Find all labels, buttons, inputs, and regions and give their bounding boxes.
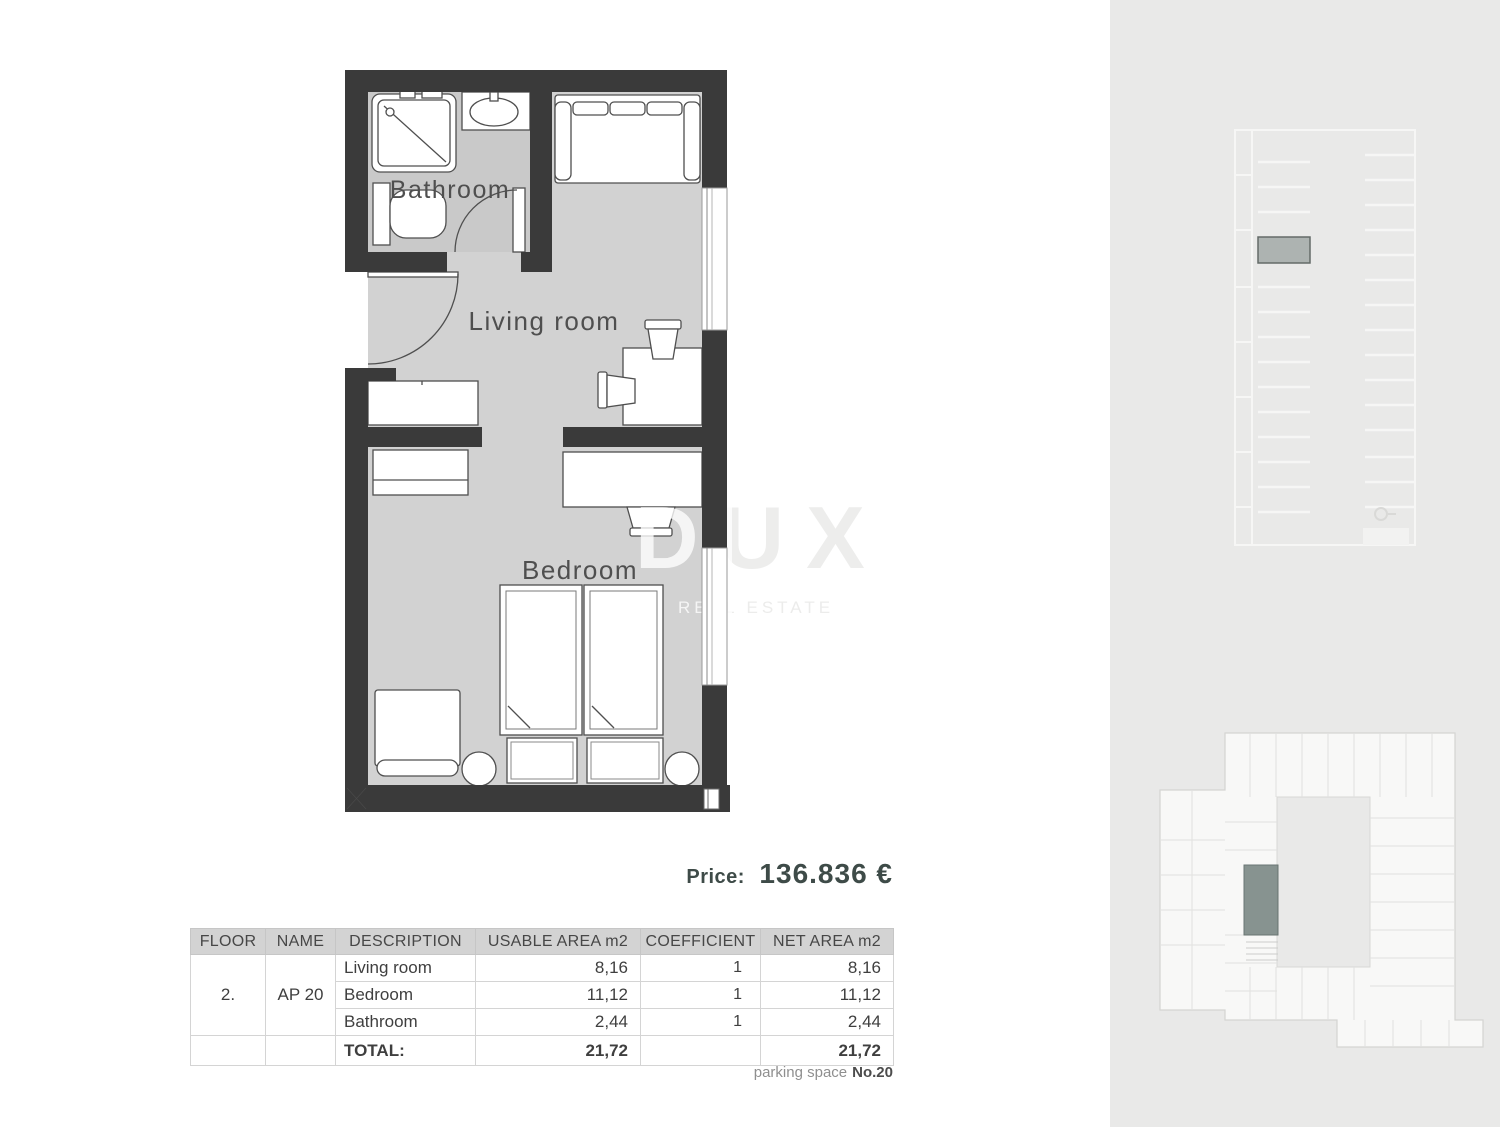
window-1: [702, 188, 727, 330]
highlighted-unit: [1244, 865, 1278, 935]
floor-plan: DUX REAL ESTATE Bathroom Living room: [342, 62, 732, 822]
bed-bench-2: [587, 738, 663, 783]
room-label-bathroom: Bathroom: [390, 176, 510, 204]
row-coefficient: 1: [641, 982, 761, 1009]
side-table-1: [462, 752, 496, 786]
sofa: [555, 95, 700, 183]
parking-ramp: [1363, 528, 1409, 545]
parking-note-label: parking space: [754, 1064, 847, 1081]
row-coefficient: 1: [641, 1009, 761, 1036]
total-floor-empty: [191, 1036, 266, 1066]
table-total-row: TOTAL: 21,72 21,72: [191, 1036, 894, 1066]
price-label: Price:: [686, 866, 745, 888]
header-floor: FLOOR: [191, 929, 266, 955]
total-name-empty: [266, 1036, 336, 1066]
row-coefficient: 1: [641, 955, 761, 982]
room-label-bedroom: Bedroom: [522, 555, 638, 585]
armchair: [375, 690, 460, 776]
row-usable: 2,44: [476, 1009, 641, 1036]
row-net: 2,44: [761, 1009, 894, 1036]
wardrobe: [373, 450, 468, 495]
header-coefficient: COEFFICIENT: [641, 929, 761, 955]
total-net: 21,72: [761, 1036, 894, 1066]
living-cabinet: [368, 381, 478, 425]
window-2: [702, 548, 727, 685]
bed-bench-1: [507, 738, 577, 783]
total-usable: 21,72: [476, 1036, 641, 1066]
area-table: FLOOR NAME DESCRIPTION USABLE AREA m2 CO…: [190, 928, 894, 1066]
site-panel: [1110, 0, 1500, 1127]
row-usable: 8,16: [476, 955, 641, 982]
total-coefficient-empty: [641, 1036, 761, 1066]
header-usable-area: USABLE AREA m2: [476, 929, 641, 955]
row-description: Living room: [336, 955, 476, 982]
price-value: 136.836 €: [759, 858, 893, 889]
header-net-area: NET AREA m2: [761, 929, 894, 955]
shower: [372, 90, 456, 172]
row-net: 8,16: [761, 955, 894, 982]
side-table-2: [665, 752, 699, 786]
table-header-row: FLOOR NAME DESCRIPTION USABLE AREA m2 CO…: [191, 929, 894, 955]
bed-2: [584, 585, 663, 735]
bed-1: [500, 585, 582, 735]
header-name: NAME: [266, 929, 336, 955]
courtyard: [1277, 797, 1370, 967]
header-description: DESCRIPTION: [336, 929, 476, 955]
parking-space-note: parking spaceNo.20: [600, 1064, 893, 1081]
total-label: TOTAL:: [336, 1036, 476, 1066]
row-description: Bedroom: [336, 982, 476, 1009]
highlighted-parking-space: [1258, 237, 1310, 263]
floor-value: 2.: [191, 955, 266, 1036]
row-net: 11,12: [761, 982, 894, 1009]
real-estate-listing: { "floor_plan": { "labels": { "bathroom"…: [0, 0, 1500, 1127]
room-label-living-room: Living room: [469, 306, 620, 336]
row-description: Bathroom: [336, 1009, 476, 1036]
sink: [462, 92, 530, 130]
table-row: 2. AP 20 Living room 8,16 1 8,16: [191, 955, 894, 982]
price: Price: 136.836 €: [600, 858, 893, 890]
row-usable: 11,12: [476, 982, 641, 1009]
apartment-name: AP 20: [266, 955, 336, 1036]
parking-note-number: No.20: [852, 1064, 893, 1081]
